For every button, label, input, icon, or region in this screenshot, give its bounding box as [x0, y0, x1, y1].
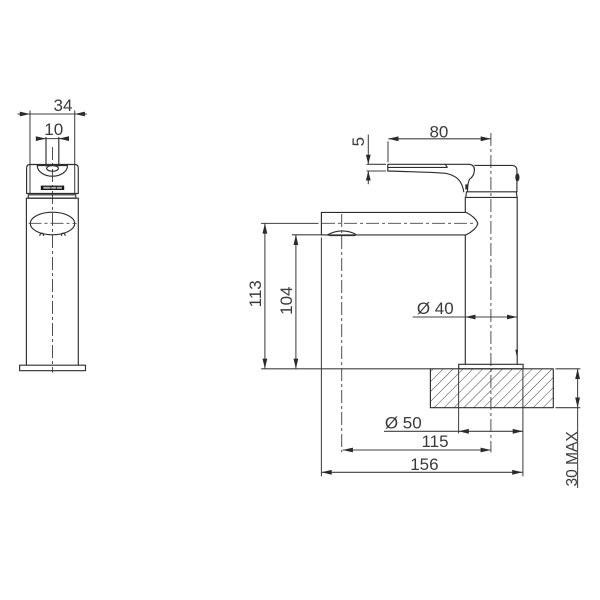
svg-text:156: 156: [410, 455, 438, 474]
svg-text:Ø 40: Ø 40: [417, 299, 454, 318]
svg-text:80: 80: [429, 123, 448, 142]
svg-text:10: 10: [44, 120, 63, 139]
svg-text:5: 5: [349, 137, 368, 146]
svg-text:104: 104: [277, 287, 296, 315]
svg-text:30 MAX: 30 MAX: [564, 431, 581, 487]
svg-text:115: 115: [421, 432, 448, 451]
svg-text:Ø 50: Ø 50: [385, 414, 422, 433]
svg-text:34: 34: [54, 96, 73, 115]
svg-text:113: 113: [246, 280, 265, 307]
